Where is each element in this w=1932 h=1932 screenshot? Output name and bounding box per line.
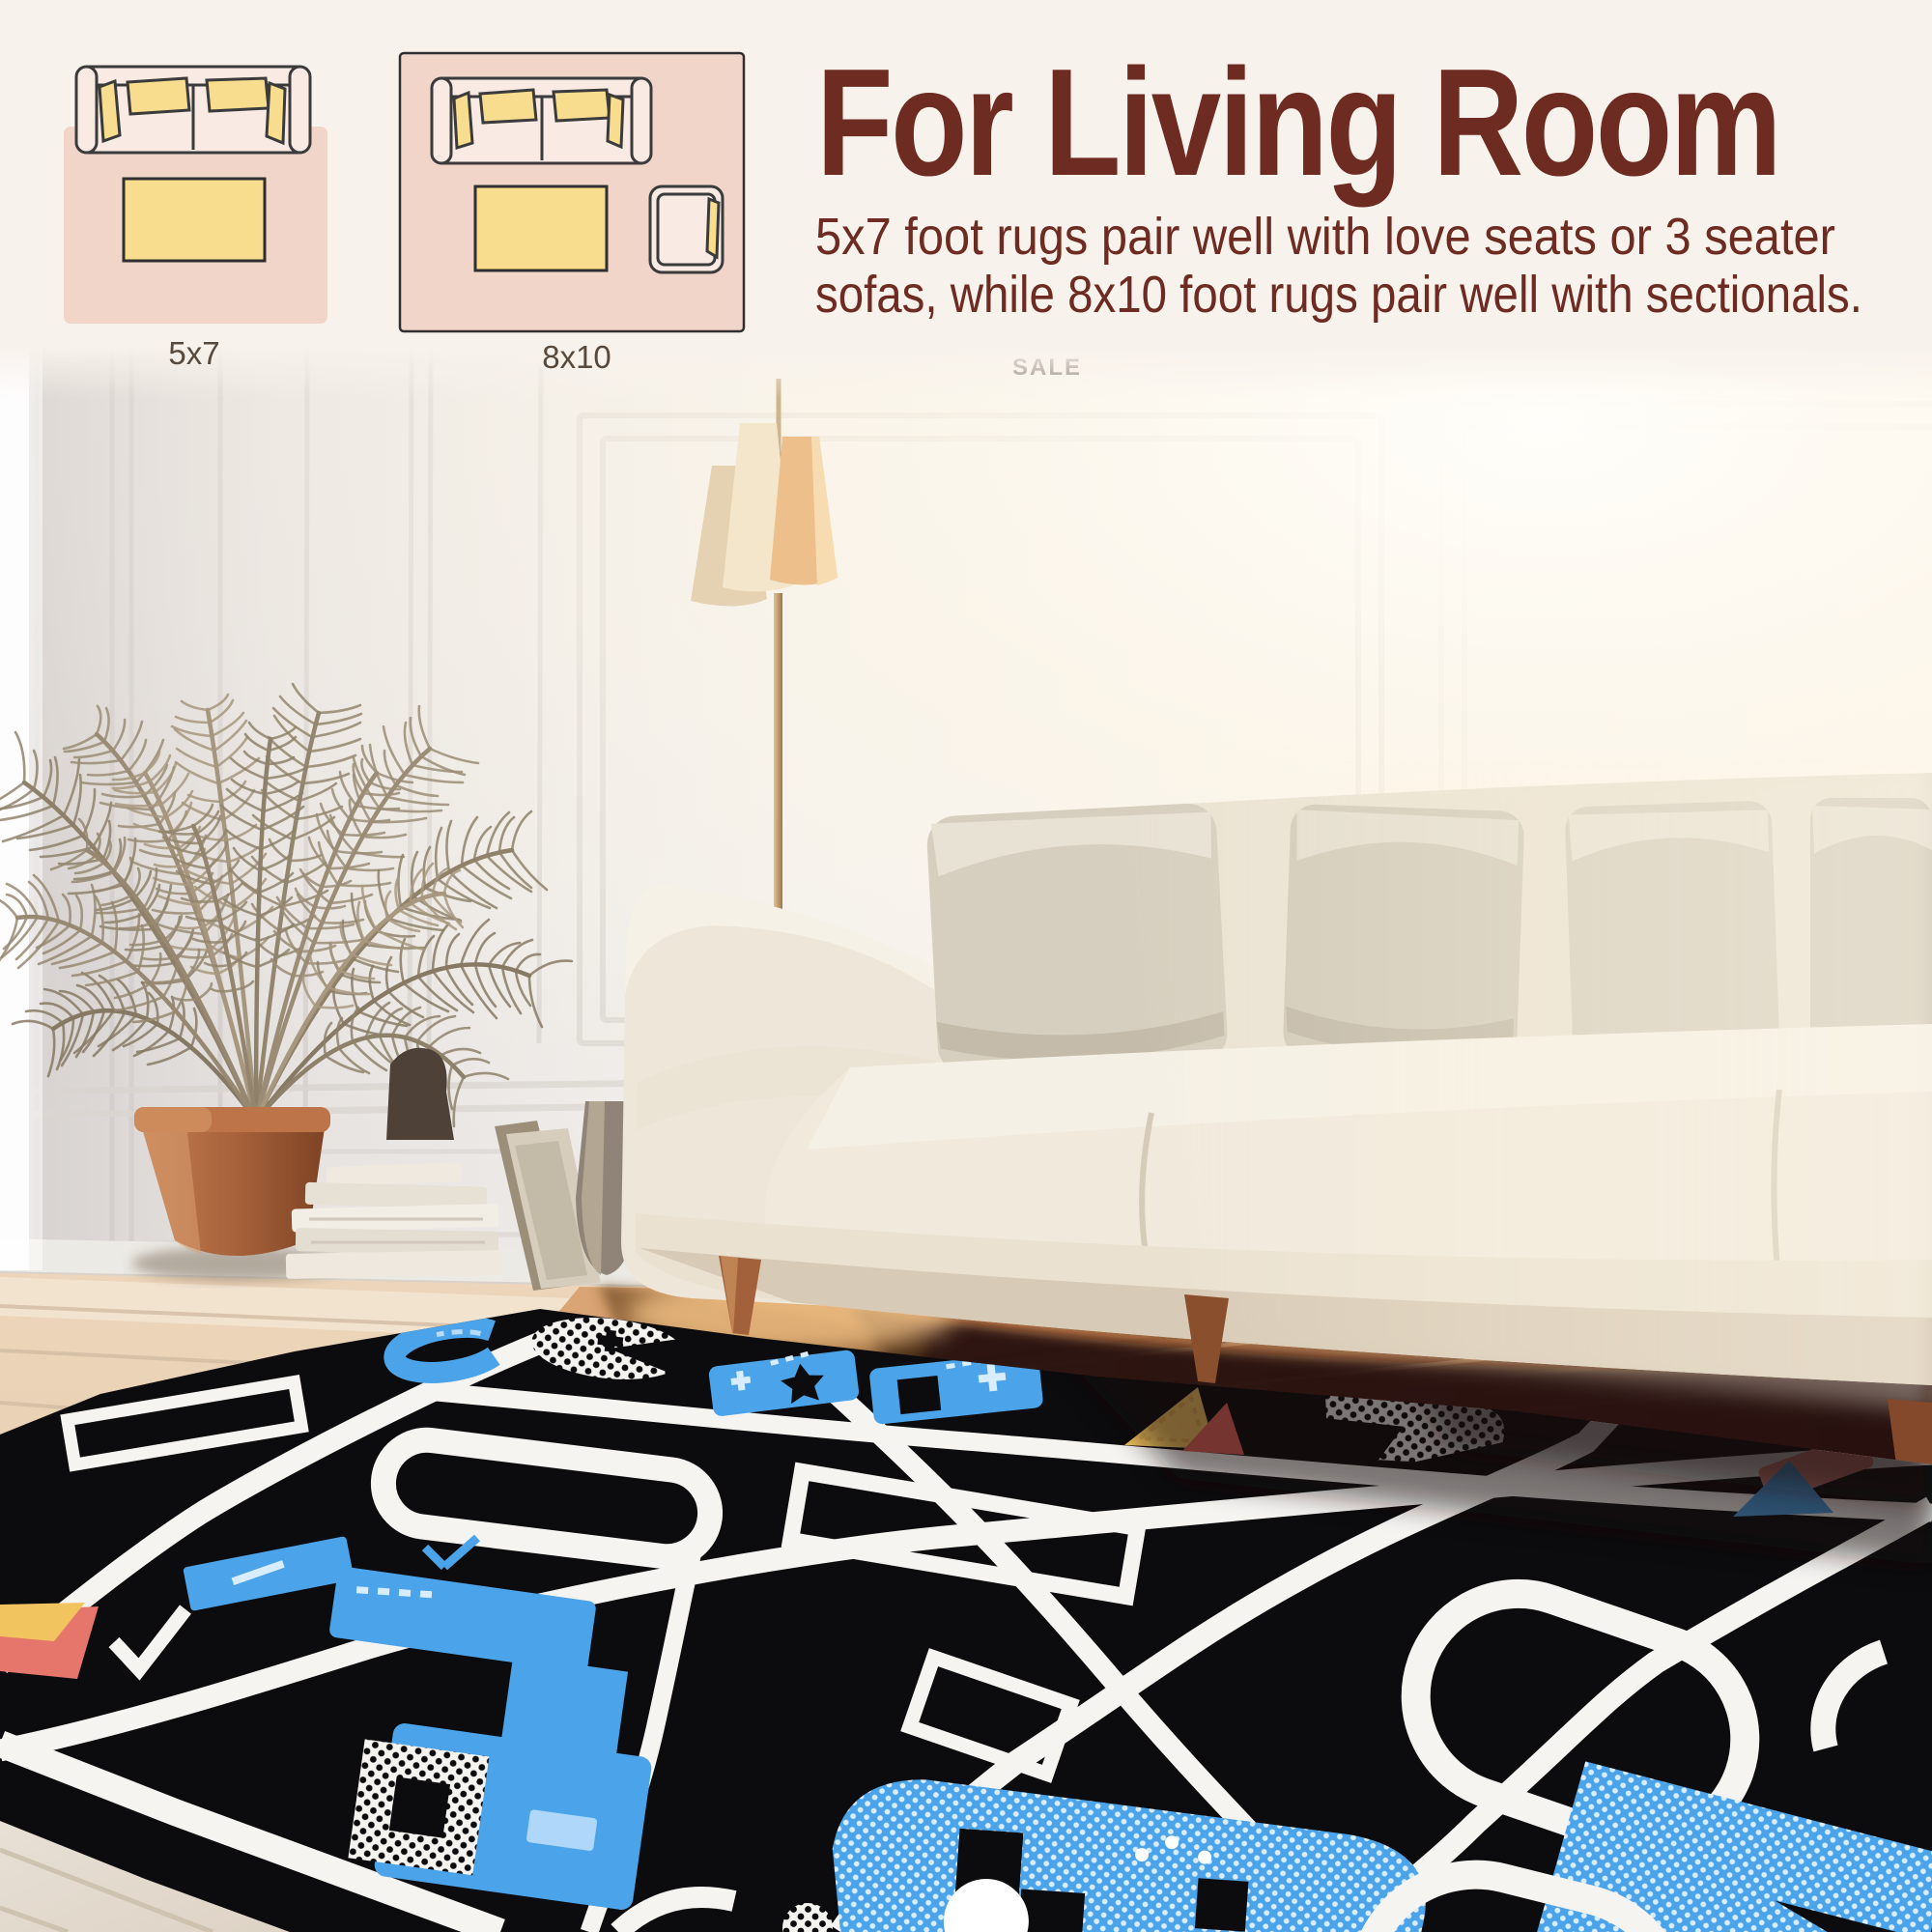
svg-text:8x10: 8x10: [542, 339, 611, 375]
